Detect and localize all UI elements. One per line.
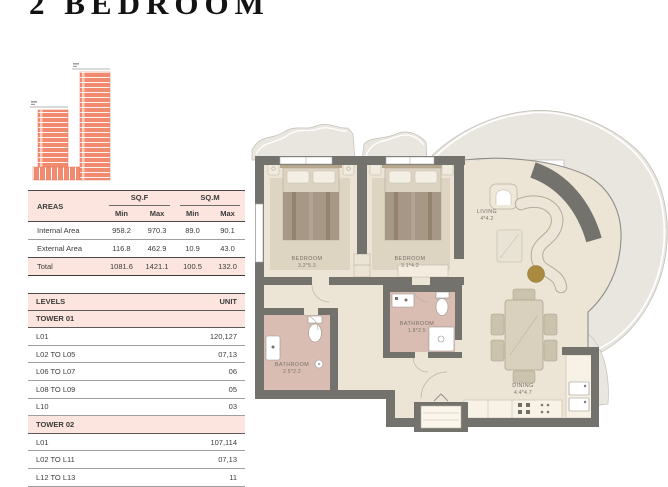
toilet — [309, 324, 322, 342]
bathroom1 — [264, 315, 330, 390]
row-value: 120,127 — [210, 332, 237, 341]
table-row: L12 TO L13 11 — [28, 469, 245, 487]
wall-bottom-left — [255, 390, 395, 399]
wall-bathroom1-right — [330, 308, 338, 392]
row-value: 11 — [229, 473, 237, 482]
table-row: L02 TO L11 07,13 — [28, 451, 245, 469]
cell-value: 116.8 — [104, 244, 139, 253]
row-label: L01 — [36, 438, 49, 447]
bathroom2-dims: 1.8*2.5 — [408, 328, 426, 334]
pillow — [287, 171, 309, 183]
table-row: L08 TO L09 05 — [28, 381, 245, 399]
row-label: External Area — [28, 244, 104, 253]
areas-table: AREAS SQ.F SQ.M Min Max Min Max Internal… — [28, 190, 245, 276]
appliance-knob — [584, 401, 586, 403]
bathroom2-label: BATHROOM — [400, 321, 434, 327]
row-value: 107,114 — [210, 438, 237, 447]
wall-bedroom1-south — [329, 277, 369, 285]
bedroom1-dims: 3.2*5.3 — [298, 263, 316, 269]
cell-value: 132.0 — [210, 262, 245, 271]
chair — [544, 340, 557, 361]
table-row-total: Total 1081.6 1421.1 100.5 132.0 — [28, 257, 245, 276]
pillow — [389, 171, 411, 183]
bathroom1-label: BATHROOM — [275, 362, 309, 368]
levels-table: LEVELS UNIT TOWER 01 L01 120,127 L02 TO … — [28, 293, 245, 487]
wall-bedroom2-south — [430, 277, 464, 285]
sqf-min-header: Min — [104, 206, 139, 221]
dining-dims: 4.4*4.7 — [514, 390, 532, 396]
floor-label-mark — [31, 101, 37, 103]
wall-bedroom2-living — [454, 156, 464, 259]
sqm-min-header: Min — [175, 206, 210, 221]
wall-bathroom2-top — [383, 285, 462, 292]
cell-value: 958.2 — [104, 226, 139, 235]
row-value: 07,13 — [218, 350, 237, 359]
pillow — [313, 171, 335, 183]
row-label: Internal Area — [28, 226, 104, 235]
table-row: L01 107,114 — [28, 434, 245, 452]
row-label: L08 TO L09 — [36, 385, 75, 394]
tower-key-diagram — [28, 58, 138, 188]
kitchen-counter — [464, 400, 562, 418]
tower-subheader-row: TOWER 01 — [28, 311, 245, 329]
tower-subheader-row: TOWER 02 — [28, 416, 245, 434]
areas-table-header: AREAS SQ.F SQ.M Min Max Min Max — [28, 190, 245, 222]
row-value: 05 — [229, 385, 237, 394]
table-row: L06 TO L07 06 — [28, 363, 245, 381]
bedroom2-dims: 3.1*4.2 — [401, 263, 419, 269]
levels-header-cell: LEVELS — [36, 297, 65, 306]
row-value: 07,13 — [218, 455, 237, 464]
wall-bathroom2-right — [455, 285, 462, 340]
row-label: L02 TO L05 — [36, 350, 75, 359]
cell-value: 10.9 — [175, 244, 210, 253]
living-label: LIVING — [477, 209, 497, 215]
closet — [354, 254, 370, 277]
tower-podium — [33, 167, 80, 180]
microwave — [569, 398, 589, 411]
floor-label-mark — [73, 63, 79, 65]
cooktop-burner — [526, 403, 530, 407]
row-label: L01 — [36, 332, 49, 341]
floor-label-mark — [31, 104, 35, 105]
row-label: L10 — [36, 402, 49, 411]
chair — [544, 314, 557, 335]
cell-value: 100.5 — [175, 262, 210, 271]
sqm-max-header: Max — [210, 206, 245, 221]
bedroom1 — [268, 162, 354, 270]
chair — [513, 371, 535, 383]
wall-bedroom2-south — [368, 277, 412, 285]
row-label: L12 TO L13 — [36, 473, 75, 482]
table-row: L01 120,127 — [28, 328, 245, 346]
row-label: TOWER 02 — [36, 420, 74, 429]
wall-bathroom2-bottom — [428, 352, 462, 358]
floor-plan: BEDROOM 3.2*5.3 BEDROOM 3.1*4.2 LIVING 4… — [250, 100, 668, 452]
sink-tap — [541, 404, 544, 407]
entry-vestibule — [421, 406, 461, 428]
cooktop-burner — [518, 410, 522, 414]
chair — [513, 289, 535, 301]
page-title: 2 BEDROOM — [29, 0, 270, 22]
shower — [429, 327, 454, 351]
dining-label: DINING — [512, 383, 534, 389]
ottoman — [528, 266, 545, 283]
table-row: L10 03 — [28, 399, 245, 417]
cell-value: 970.3 — [139, 226, 175, 235]
bedroom2-label: BEDROOM — [394, 256, 425, 262]
sink-tap — [547, 411, 550, 414]
faucet — [272, 346, 275, 349]
drain — [405, 299, 408, 302]
table-row: L02 TO L05 07,13 — [28, 346, 245, 364]
table-row: Internal Area 958.2 970.3 89.0 90.1 — [28, 222, 245, 240]
wall-right — [591, 347, 599, 427]
pillow — [415, 171, 437, 183]
toilet-tank — [436, 292, 449, 298]
row-label: L02 TO L11 — [36, 455, 75, 464]
cell-value: 89.0 — [175, 226, 210, 235]
toilet — [436, 299, 448, 316]
cell-value: 1081.6 — [104, 262, 139, 271]
floor-label-mark — [73, 66, 77, 67]
bedroom1-label: BEDROOM — [291, 256, 322, 262]
faucet — [395, 297, 398, 300]
areas-header-cell: AREAS — [28, 191, 104, 221]
unit-header-cell: UNIT — [220, 297, 238, 306]
sqm-header-cell: SQ.M — [180, 191, 240, 206]
sink-tap — [541, 411, 544, 414]
chair — [491, 340, 504, 361]
sqf-header-cell: SQ.F — [109, 191, 170, 206]
sink — [392, 294, 414, 307]
living-dims: 4*4.2 — [480, 216, 493, 222]
table-row: External Area 116.8 462.9 10.9 43.0 — [28, 240, 245, 257]
wall-bedroom1-south — [264, 277, 312, 285]
chair — [491, 314, 504, 335]
row-label: L06 TO L07 — [36, 367, 75, 376]
floorplan-sheet: { "title": "2 BEDROOM", "areas_table": {… — [0, 0, 668, 452]
row-value: 06 — [229, 367, 237, 376]
shower-head-dot — [318, 363, 320, 365]
tower-02-silhouette — [72, 63, 110, 180]
row-value: 03 — [229, 402, 237, 411]
wall-bathroom2-bottom — [383, 352, 415, 358]
levels-table-header: LEVELS UNIT — [28, 293, 245, 311]
bathroom1-dims: 2.5*2.2 — [283, 369, 301, 375]
sink-tap — [547, 404, 550, 407]
row-label: Total — [28, 262, 104, 271]
cell-value: 43.0 — [210, 244, 245, 253]
cooktop-burner — [518, 403, 522, 407]
cell-value: 90.1 — [210, 226, 245, 235]
cooktop-burner — [526, 410, 530, 414]
appliance-knob — [584, 385, 586, 387]
wall-between-bedrooms — [357, 156, 367, 254]
wall-bathroom1-top — [264, 308, 304, 315]
row-label: TOWER 01 — [36, 314, 74, 323]
armchair-seat — [496, 190, 511, 205]
oven — [569, 382, 589, 395]
window — [256, 204, 264, 262]
cell-value: 1421.1 — [139, 262, 175, 271]
sqf-max-header: Max — [139, 206, 175, 221]
tower-01-silhouette — [30, 101, 68, 167]
wall-bathroom2-left — [383, 285, 390, 358]
cell-value: 462.9 — [139, 244, 175, 253]
wall-left — [255, 156, 264, 394]
